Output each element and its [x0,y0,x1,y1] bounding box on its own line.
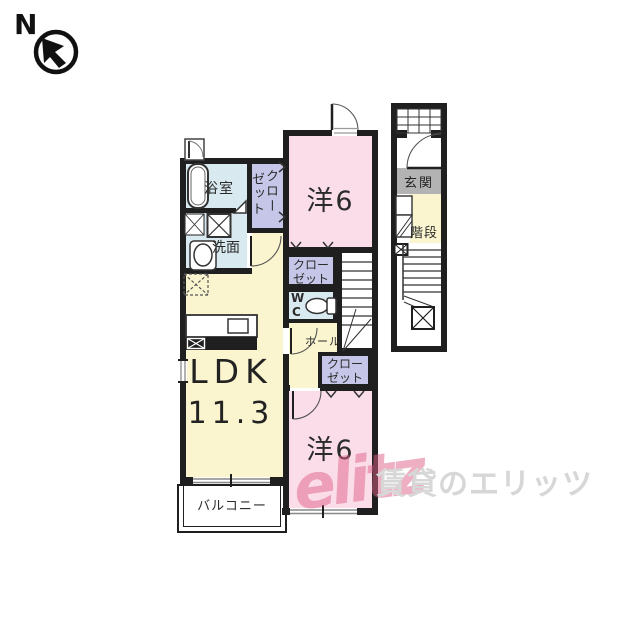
compass-icon [36,32,76,72]
hall-label: ホール [305,333,341,349]
stairs-steps [342,262,372,351]
wc-line1: W [291,291,304,305]
toilet-icon [306,298,336,314]
bathroom-label: 浴室 [204,178,234,198]
washroom-label: 洗面 [212,237,240,257]
western-bottom-door-arc [293,391,321,419]
washer-icon [185,214,231,237]
ldk-balcony-window [193,474,270,487]
kitchen-counter-icon [186,315,257,350]
western-top-label: 洋6 [289,179,372,218]
storage-box-icon [412,307,434,329]
floorplan-linework [0,0,640,640]
exterior-stairs-steps [403,243,441,309]
bathroom-window [185,139,204,160]
balcony-label: バルコニー [183,495,281,514]
porch-grid [397,109,441,133]
entrance-label: 玄関 [397,172,441,191]
washroom-door-arc [251,236,281,266]
closet-left-label-col2: ゼット [247,172,266,217]
staircase-label: 階段 [406,222,442,241]
watermark-text: 賃貸のエリッツ [376,459,593,503]
ldk-area-label: 11.3 [184,396,278,431]
western-top-door-arc [332,104,358,133]
bathroom-door-icon [234,201,246,213]
entrance-door-arc [407,134,441,168]
closet-bottom-line2: ゼット [318,369,372,386]
fridge-icon [184,274,208,295]
wc-line2: C [292,305,301,319]
ldk-label: LDK [184,352,278,391]
compass-label: N [14,8,37,41]
closet-mid-line2: ゼット [285,270,337,287]
